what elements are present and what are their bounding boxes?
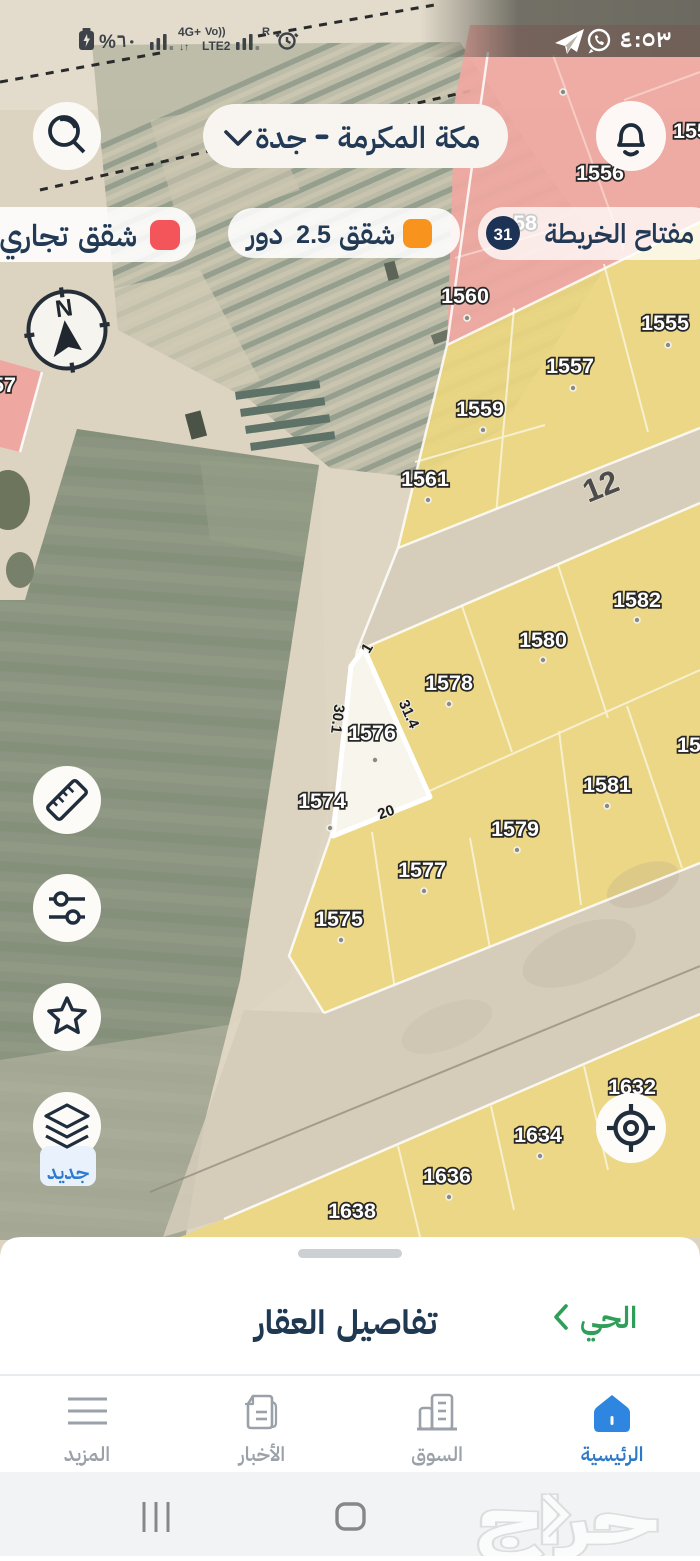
svg-text:1561: 1561 bbox=[401, 467, 449, 491]
svg-text:1574: 1574 bbox=[298, 789, 346, 813]
svg-text:1636: 1636 bbox=[423, 1164, 471, 1188]
svg-text:LTE2: LTE2 bbox=[202, 39, 231, 53]
svg-text:1560: 1560 bbox=[441, 284, 489, 308]
svg-text:57: 57 bbox=[0, 373, 16, 397]
svg-text:%: % bbox=[99, 32, 116, 53]
svg-text:Vo)): Vo)) bbox=[205, 26, 226, 38]
svg-text:1576: 1576 bbox=[348, 721, 396, 745]
svg-text:1634: 1634 bbox=[514, 1123, 562, 1147]
svg-text:R: R bbox=[262, 26, 270, 38]
svg-text:155: 155 bbox=[677, 733, 700, 757]
svg-text:1555: 1555 bbox=[673, 119, 700, 143]
svg-text:1581: 1581 bbox=[583, 773, 631, 797]
svg-text:1582: 1582 bbox=[613, 588, 661, 612]
svg-text:1578: 1578 bbox=[425, 671, 473, 695]
svg-text:1638: 1638 bbox=[328, 1199, 376, 1223]
svg-text:2.5: 2.5 bbox=[296, 221, 331, 249]
svg-text:1559: 1559 bbox=[456, 397, 504, 421]
svg-text:1577: 1577 bbox=[398, 858, 446, 882]
svg-text:30.1: 30.1 bbox=[327, 703, 347, 734]
svg-text:4G+: 4G+ bbox=[178, 25, 201, 39]
svg-text:1575: 1575 bbox=[315, 907, 363, 931]
svg-text:1555: 1555 bbox=[641, 311, 689, 335]
svg-text:1557: 1557 bbox=[546, 354, 594, 378]
svg-text:1579: 1579 bbox=[491, 817, 539, 841]
svg-text:1580: 1580 bbox=[519, 628, 567, 652]
svg-text:↓↑: ↓↑ bbox=[179, 42, 189, 53]
svg-text:31: 31 bbox=[494, 225, 513, 244]
